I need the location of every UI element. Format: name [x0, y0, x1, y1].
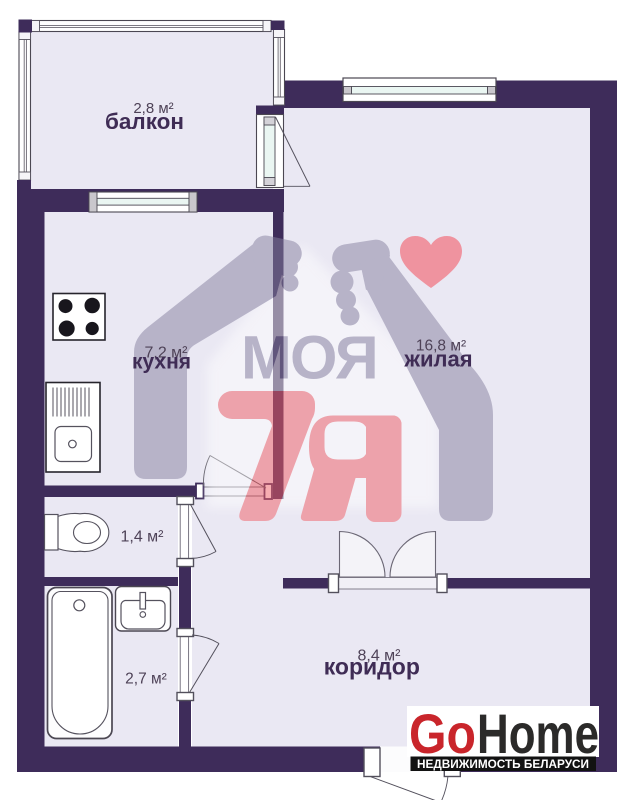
svg-text:НЕДВИЖИМОСТЬ БЕЛАРУСИ: НЕДВИЖИМОСТЬ БЕЛАРУСИ [417, 757, 589, 771]
svg-text:жилая: жилая [403, 347, 472, 372]
svg-text:коридор: коридор [324, 654, 420, 680]
svg-text:Home: Home [477, 702, 599, 765]
svg-text:МОЯ: МОЯ [241, 324, 377, 392]
svg-text:Go: Go [409, 702, 476, 765]
svg-text:кухня: кухня [132, 350, 191, 373]
svg-text:1,4 м²: 1,4 м² [120, 529, 164, 546]
svg-text:балкон: балкон [105, 109, 184, 134]
svg-text:2,7 м²: 2,7 м² [125, 671, 167, 688]
